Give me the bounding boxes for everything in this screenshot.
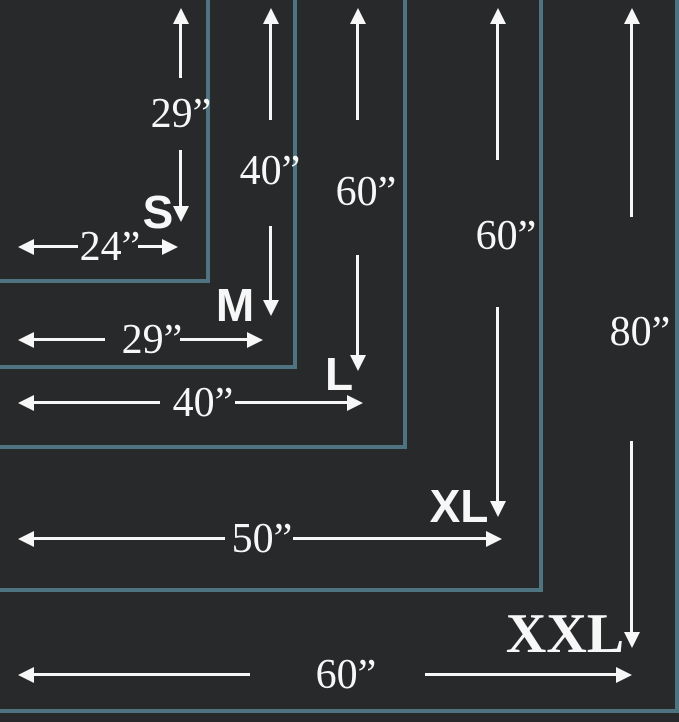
xl-height-label: 60” [476,215,537,257]
s-height-arrow-down-head [173,206,189,222]
xxl-height-arrow-down-line [630,441,633,633]
xxl-width-arrow-right-line [425,673,616,676]
xl-width-label: 50” [232,518,293,560]
m-width-arrow-right-line [180,338,249,341]
l-height-arrow-up-line [356,22,359,120]
m-height-label: 40” [240,150,301,192]
xl-width-arrow-left-line [32,537,225,540]
s-width-label: 24” [80,226,141,268]
m-width-arrow-left-line [32,338,105,341]
l-width-arrow-right-head [347,395,363,411]
l-height-arrow-down-line [356,255,359,355]
m-height-arrow-down-head [263,300,279,316]
s-height-arrow-down-line [179,150,182,207]
xxl-height-arrow-up-line [630,22,633,217]
s-height-label: 29” [151,93,212,135]
size-chart-diagram: 29” S 24” 40” M 29” 60” L 40” 60” XL 50” [0,0,679,722]
s-width-arrow-left-line [32,245,78,248]
l-width-arrow-left-line [32,401,160,404]
l-width-label: 40” [173,382,234,424]
xl-width-arrow-right-head [486,531,502,547]
xl-height-arrow-down-head [490,501,506,517]
xl-height-arrow-up-line [496,22,499,160]
xxl-height-label: 80” [610,311,671,353]
s-width-arrow-right-head [162,239,178,255]
s-width-arrow-right-line [138,245,164,248]
m-width-arrow-right-head [247,332,263,348]
xxl-size-label: XXL [506,606,624,662]
m-width-label: 29” [122,319,183,361]
l-height-label: 60” [336,171,397,213]
m-height-arrow-down-line [269,226,272,301]
l-size-label: L [325,351,353,397]
s-size-label: S [143,189,174,235]
xxl-height-arrow-down-head [624,632,640,648]
xxl-width-label: 60” [316,654,377,696]
m-height-arrow-up-line [269,22,272,120]
xxl-width-arrow-right-head [616,667,632,683]
l-width-arrow-right-line [235,401,347,404]
m-size-label: M [216,282,254,328]
xl-height-arrow-down-line [496,307,499,502]
xl-size-label: XL [430,483,489,529]
xxl-width-arrow-left-line [32,673,250,676]
xl-width-arrow-right-line [293,537,486,540]
s-height-arrow-up-line [179,22,182,78]
